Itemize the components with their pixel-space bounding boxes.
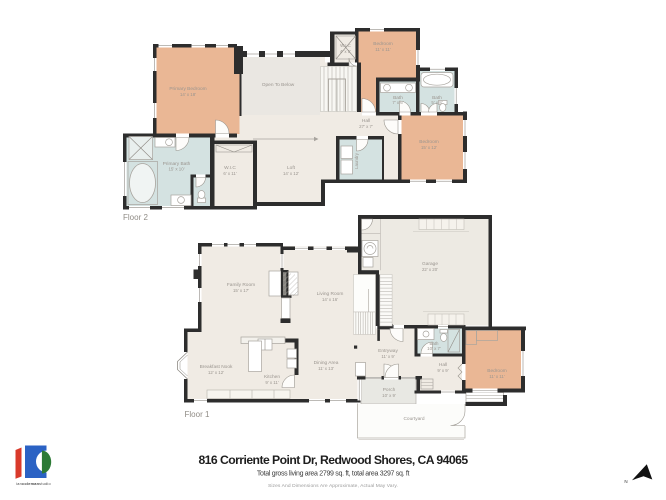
- svg-text:15' x 10': 15' x 10': [168, 167, 184, 172]
- svg-text:27' x 7': 27' x 7': [359, 124, 373, 129]
- svg-text:11' x 11': 11' x 11': [489, 374, 505, 379]
- svg-text:11' x 9': 11' x 9': [381, 354, 394, 359]
- svg-text:11' x 13': 11' x 13': [318, 366, 334, 371]
- svg-text:Open To Below: Open To Below: [262, 82, 295, 88]
- svg-text:11' x 11': 11' x 11': [375, 47, 391, 52]
- svg-text:4' x 5': 4' x 5': [340, 49, 351, 54]
- svg-text:22' x 20': 22' x 20': [422, 267, 438, 272]
- svg-text:9' x 11': 9' x 11': [265, 380, 278, 385]
- svg-text:6' x 11': 6' x 11': [223, 171, 236, 176]
- svg-text:14' x 18': 14' x 18': [180, 92, 196, 97]
- svg-text:14' x 16': 14' x 16': [322, 297, 338, 302]
- svg-text:15' x 17': 15' x 17': [233, 288, 249, 293]
- svg-text:15' x 12': 15' x 12': [421, 145, 437, 150]
- svg-text:Floor 2: Floor 2: [123, 213, 148, 222]
- svg-text:Sizes And Dimensions Are Appro: Sizes And Dimensions Are Approximate, Ac…: [268, 483, 398, 489]
- svg-text:12' x 12': 12' x 12': [208, 370, 224, 375]
- svg-text:iancolemanstudio: iancolemanstudio: [16, 482, 51, 486]
- svg-text:7' x 6': 7' x 6': [392, 100, 403, 105]
- svg-text:14' x 12': 14' x 12': [283, 171, 299, 176]
- svg-text:5' x 8': 5' x 8': [431, 100, 442, 105]
- svg-text:Floor 1: Floor 1: [185, 410, 210, 419]
- svg-text:Courtyard: Courtyard: [403, 416, 424, 422]
- svg-text:Laundry: Laundry: [354, 152, 359, 169]
- svg-text:9' x 9': 9' x 9': [437, 368, 448, 373]
- svg-text:N: N: [624, 479, 627, 484]
- svg-text:Total gross living area 2799 s: Total gross living area 2799 sq. ft, tot…: [257, 471, 410, 478]
- svg-text:816 Corriente Point Dr, Redwoo: 816 Corriente Point Dr, Redwood Shores, …: [198, 453, 468, 467]
- svg-text:W.I.C: W.I.C: [340, 43, 351, 48]
- svg-text:10' x 7': 10' x 7': [427, 346, 441, 351]
- svg-text:10' x 9': 10' x 9': [382, 393, 396, 398]
